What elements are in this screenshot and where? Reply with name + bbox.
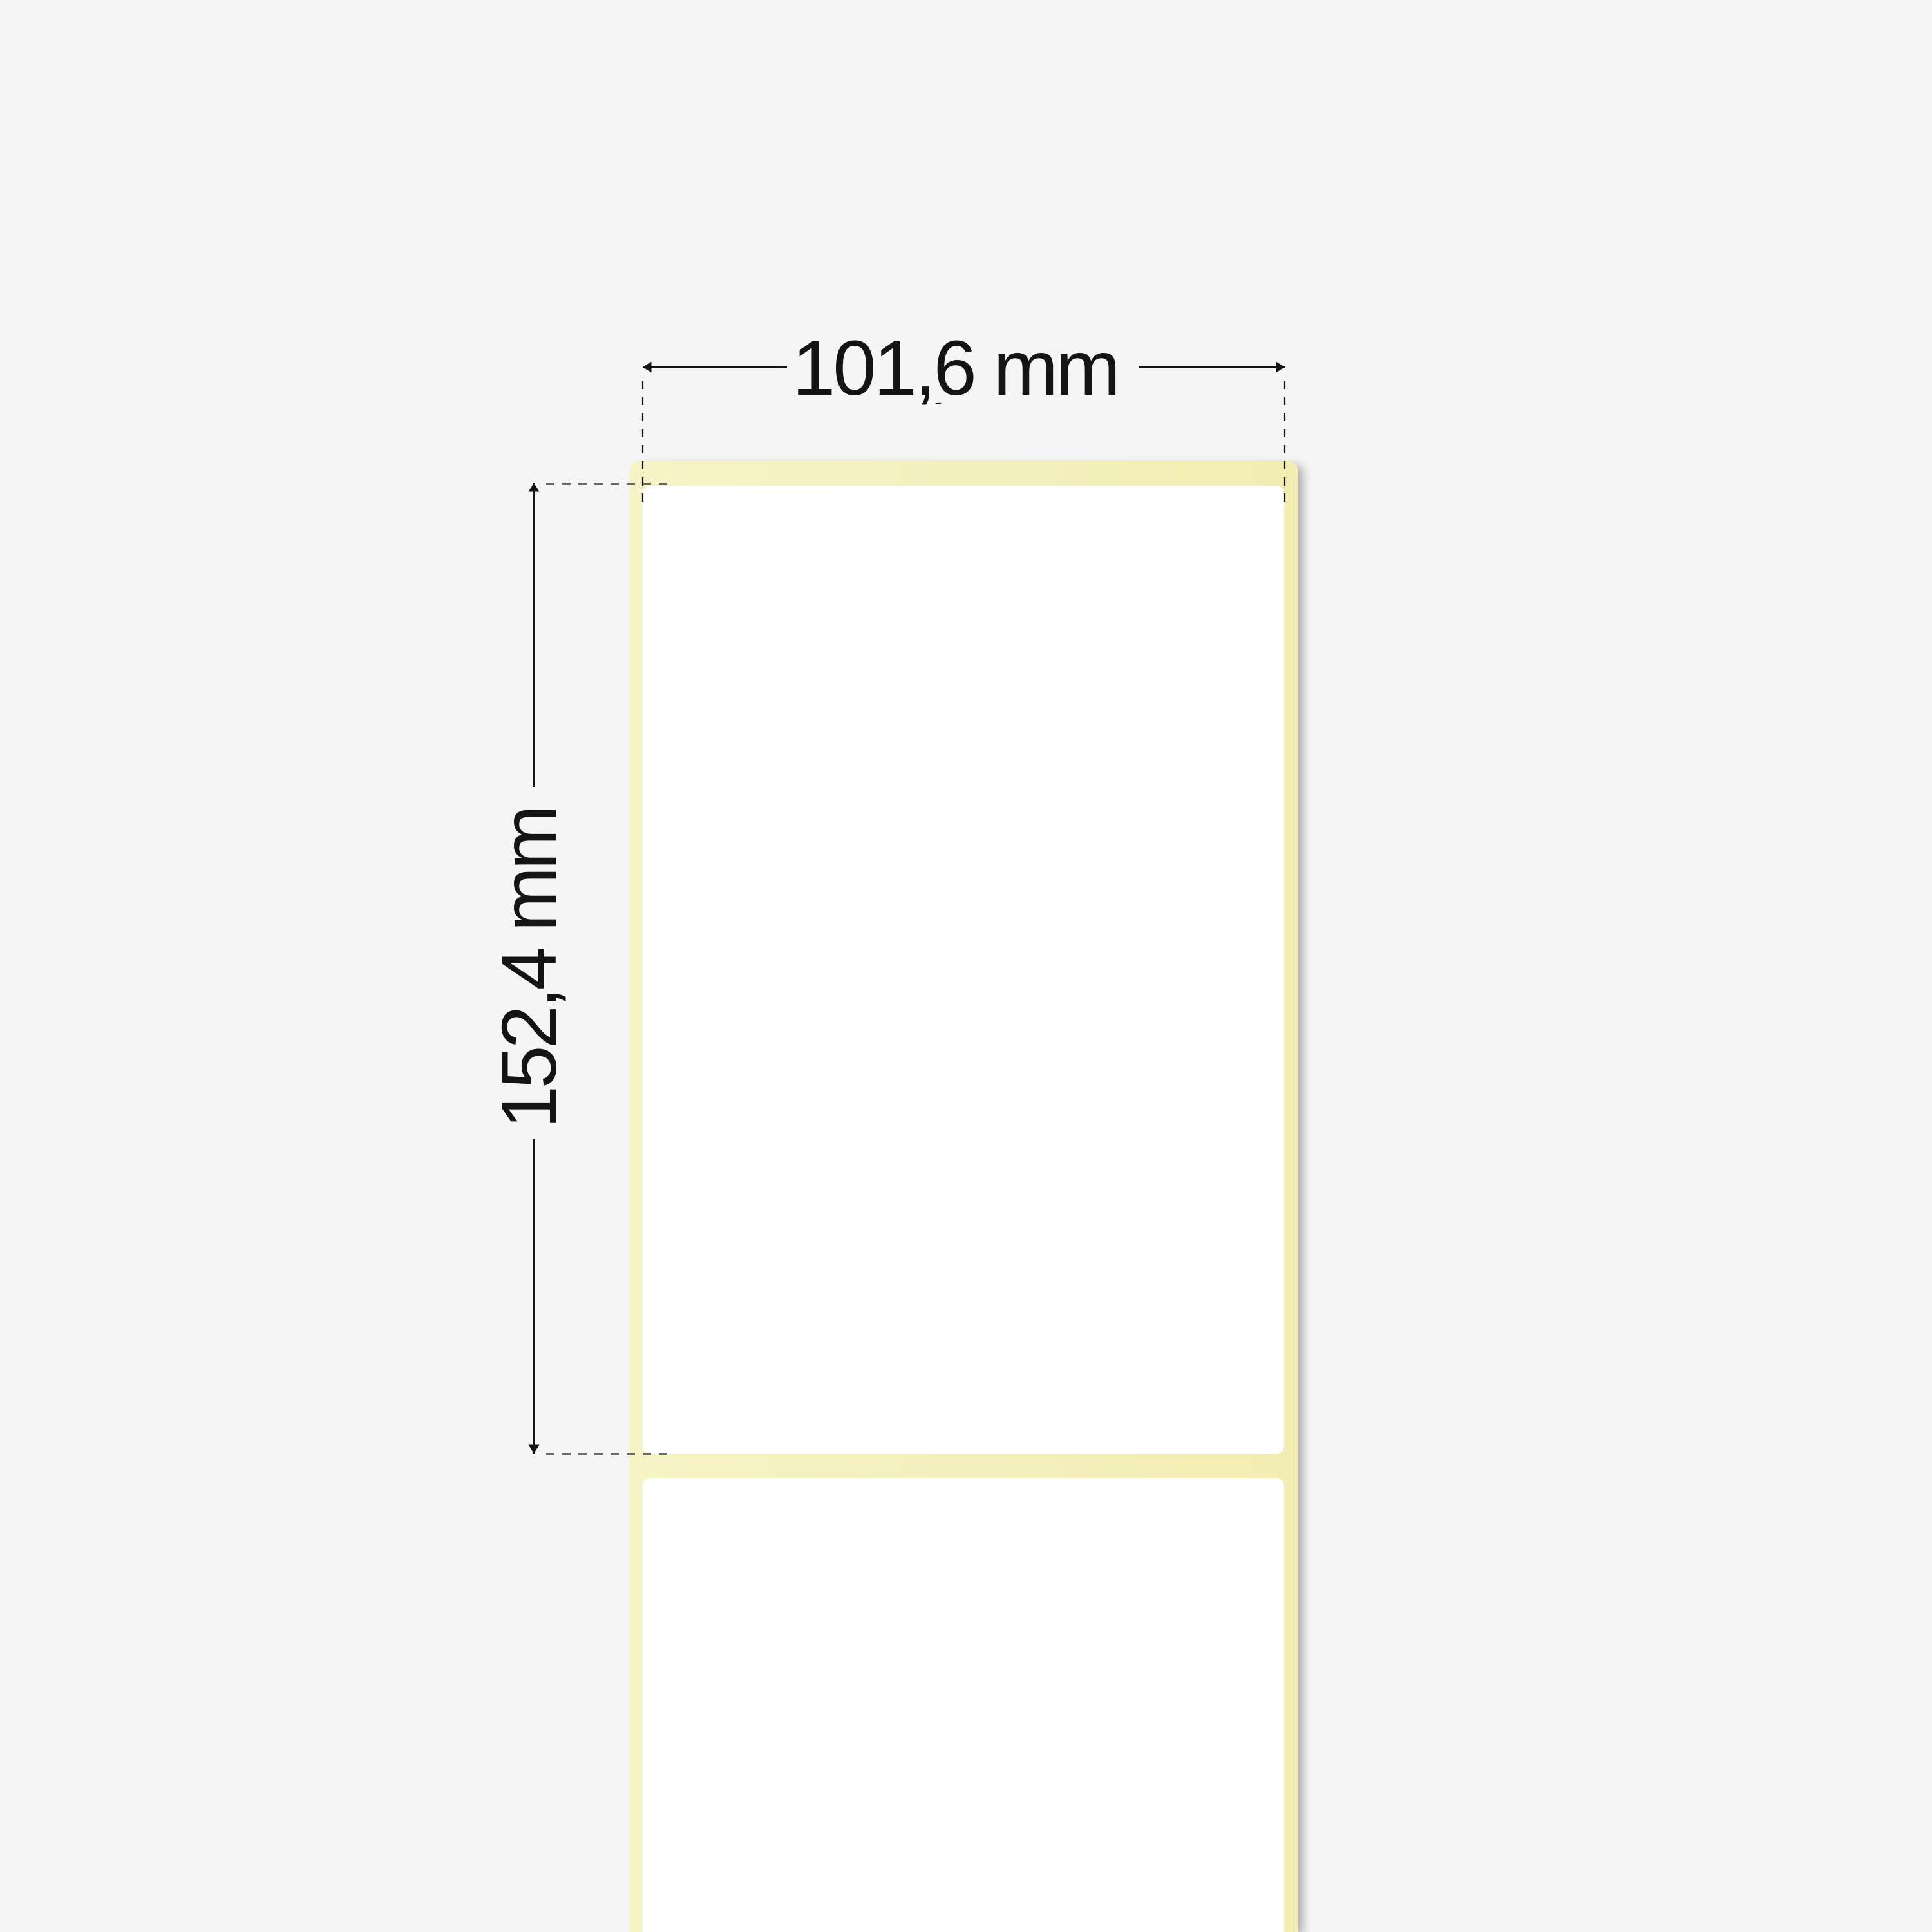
- svg-text:152,4 mm: 152,4 mm: [485, 808, 573, 1129]
- svg-text:101,6 mm: 101,6 mm: [792, 324, 1118, 412]
